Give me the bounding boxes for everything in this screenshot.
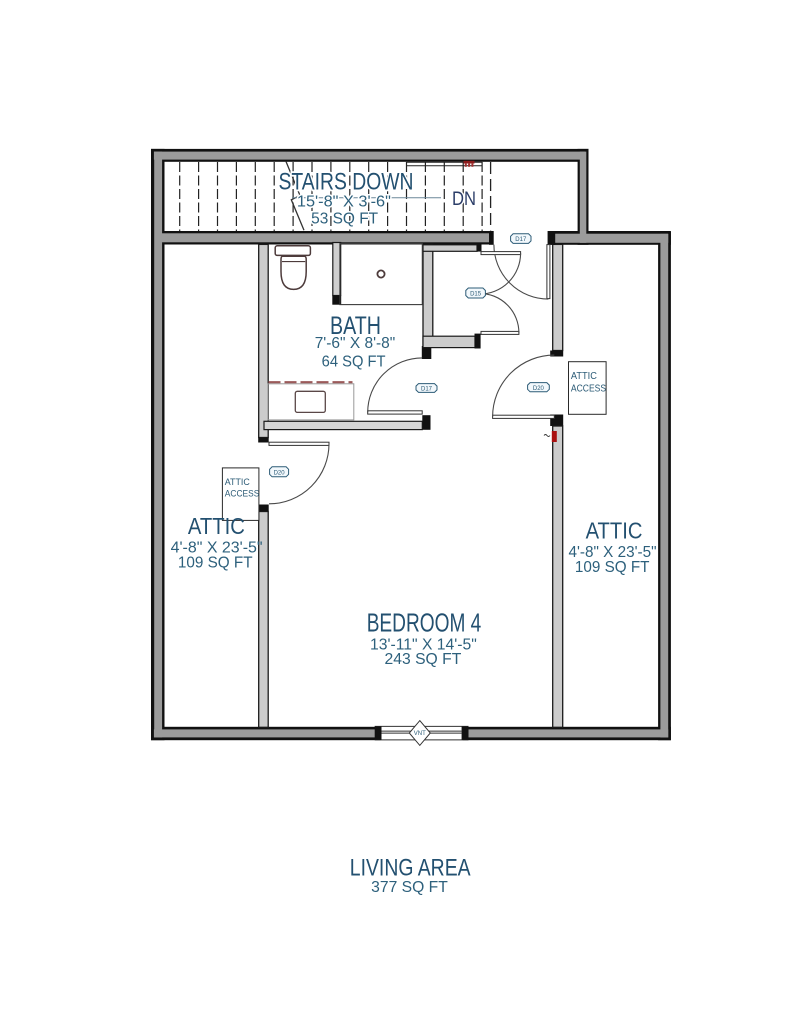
svg-text:ATTIC: ATTIC [188, 513, 245, 539]
svg-text:LIVING AREA: LIVING AREA [350, 855, 471, 882]
svg-text:VNT: VNT [414, 731, 426, 737]
svg-text:109 SQ FT: 109 SQ FT [575, 559, 650, 576]
svg-text:53 SQ FT: 53 SQ FT [311, 211, 378, 228]
svg-text:D20: D20 [533, 386, 545, 392]
svg-text:7'-6" X 8'-8": 7'-6" X 8'-8" [315, 335, 396, 352]
svg-text:STAIRS DOWN: STAIRS DOWN [279, 169, 414, 196]
svg-text:DN: DN [452, 189, 476, 210]
svg-text:D17: D17 [515, 237, 527, 243]
svg-text:ATTIC: ATTIC [225, 477, 250, 488]
svg-text:ATTIC: ATTIC [586, 517, 643, 543]
svg-text:64 SQ FT: 64 SQ FT [322, 354, 386, 371]
svg-text:ACCESS: ACCESS [571, 384, 606, 395]
svg-text:ACCESS: ACCESS [225, 489, 259, 500]
svg-text:15'-8" X 3'-6": 15'-8" X 3'-6" [297, 194, 391, 211]
svg-text:BEDROOM 4: BEDROOM 4 [367, 610, 482, 638]
svg-text:377 SQ FT: 377 SQ FT [371, 879, 448, 896]
svg-text:D20: D20 [274, 470, 286, 476]
svg-text:243 SQ FT: 243 SQ FT [385, 651, 462, 668]
svg-text:ATTIC: ATTIC [571, 371, 597, 382]
svg-text:109 SQ FT: 109 SQ FT [178, 555, 253, 572]
svg-text:D15: D15 [470, 292, 482, 298]
svg-text:D17: D17 [421, 387, 433, 393]
